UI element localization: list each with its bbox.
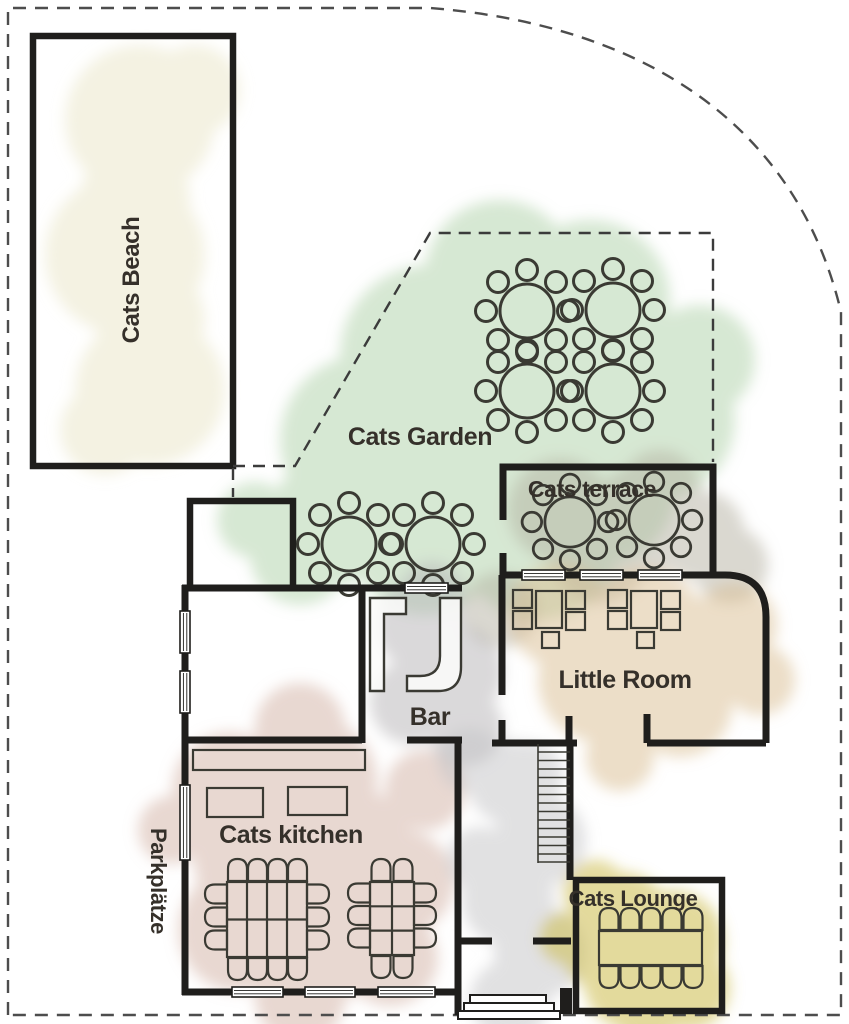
step — [458, 1011, 560, 1019]
window — [180, 611, 190, 653]
terrace-label: Cats terrace — [528, 476, 656, 502]
window — [638, 570, 682, 580]
parking-label: Parkplätze — [146, 828, 171, 934]
window — [378, 987, 435, 997]
window — [180, 785, 190, 860]
window — [580, 570, 623, 580]
bar-label: Bar — [410, 703, 451, 731]
window — [305, 987, 355, 997]
floor-plan-svg: Cats Beach Cats Garden Cats terrace — [0, 0, 849, 1024]
beach-label: Cats Beach — [118, 217, 145, 344]
window — [232, 987, 283, 997]
kitchen-label: Cats kitchen — [219, 821, 363, 849]
window — [405, 583, 448, 593]
lounge-label: Cats Lounge — [569, 886, 698, 911]
garden-label: Cats Garden — [348, 423, 492, 451]
step — [464, 1003, 554, 1011]
floor-plan: Cats Beach Cats Garden Cats terrace — [0, 0, 849, 1024]
entrance-wall-chunk — [560, 988, 572, 1014]
window — [522, 570, 565, 580]
little-room-label: Little Room — [558, 666, 691, 694]
window — [180, 671, 190, 713]
entrance-steps — [458, 995, 560, 1019]
step — [470, 995, 546, 1003]
